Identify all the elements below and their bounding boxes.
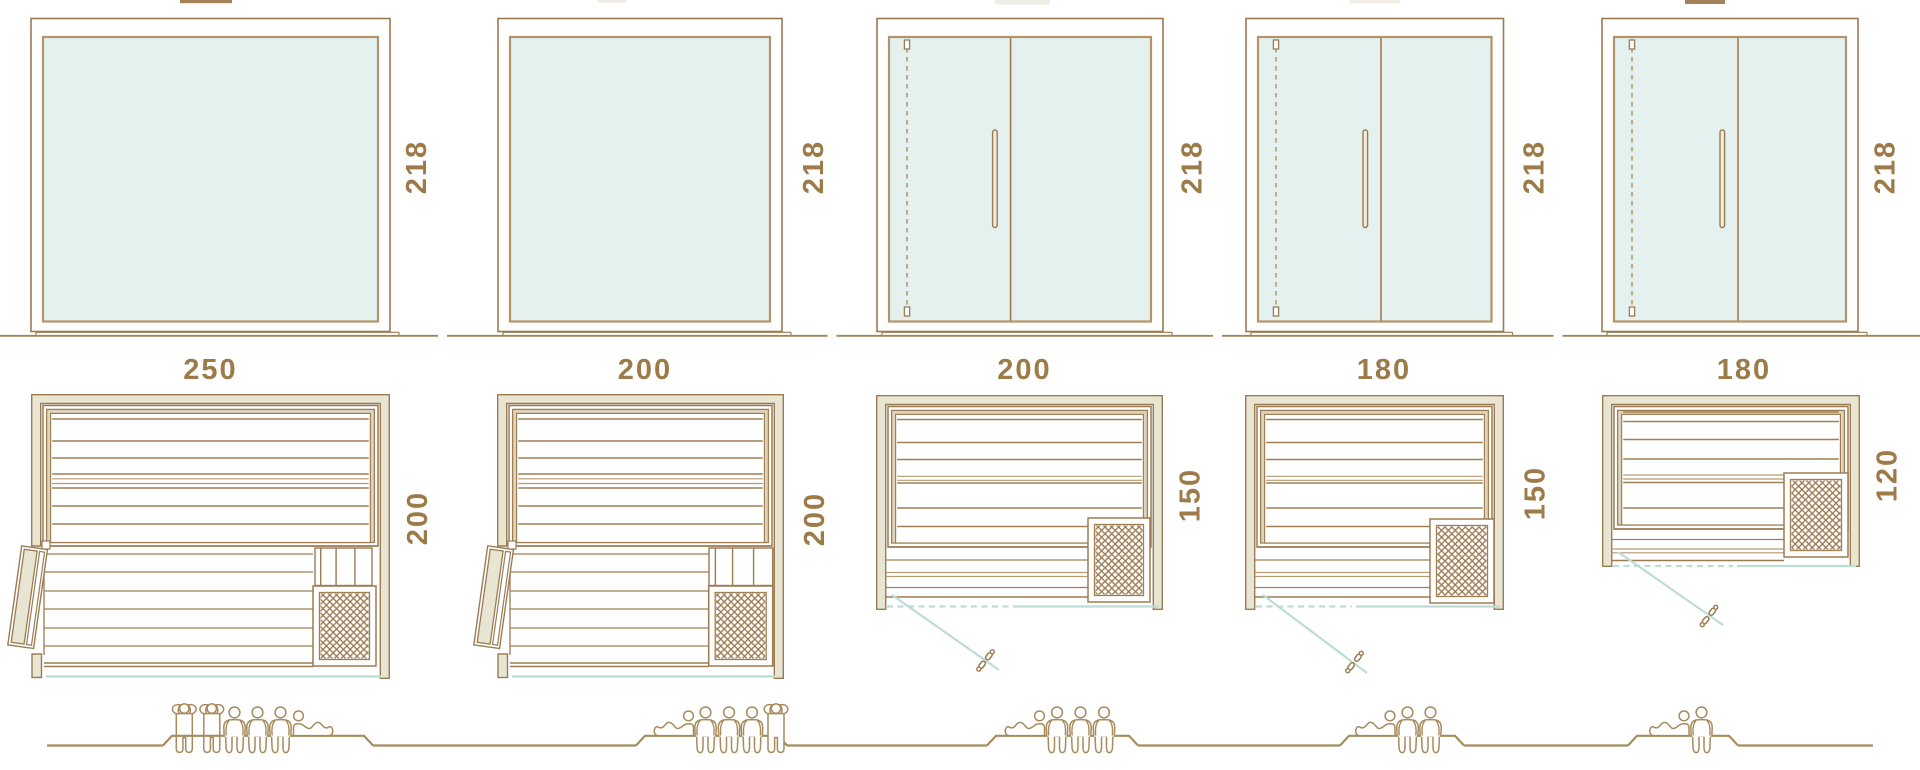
svg-text:218: 218 [401,140,433,194]
svg-text:150: 150 [1520,466,1552,520]
svg-text:150: 150 [1175,468,1207,522]
svg-text:120: 120 [1872,448,1904,502]
svg-text:200: 200 [799,492,831,546]
svg-text:218: 218 [1518,140,1550,194]
svg-text:218: 218 [1177,140,1209,194]
svg-text:180: 180 [1717,354,1771,386]
svg-text:200: 200 [402,491,434,545]
svg-text:218: 218 [798,140,830,194]
svg-text:180: 180 [1357,354,1411,386]
svg-text:200: 200 [997,354,1051,386]
svg-text:250: 250 [183,354,237,386]
svg-text:218: 218 [1869,140,1901,194]
svg-text:200: 200 [618,354,672,386]
